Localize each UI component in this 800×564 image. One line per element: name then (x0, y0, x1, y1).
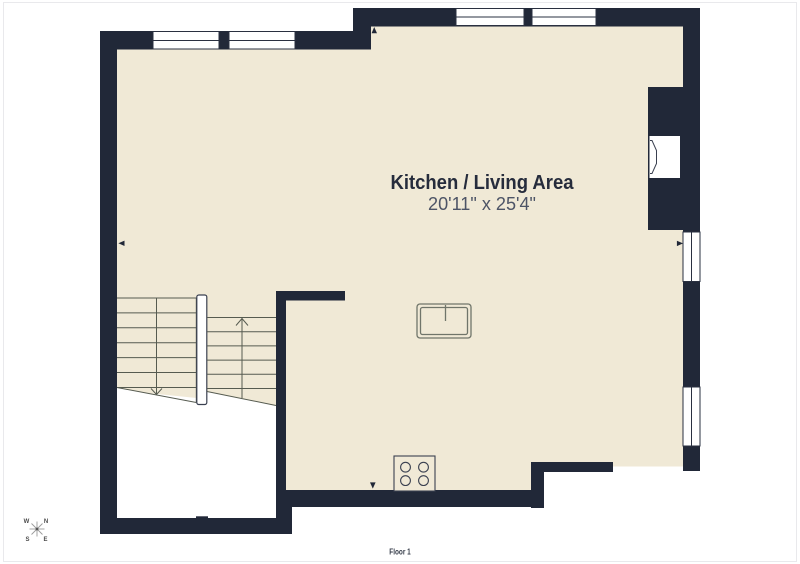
svg-text:Floor 1: Floor 1 (389, 547, 411, 557)
svg-text:N: N (44, 519, 48, 525)
svg-text:Kitchen / Living Area: Kitchen / Living Area (391, 171, 575, 194)
svg-text:S: S (25, 537, 29, 543)
svg-text:W: W (24, 519, 30, 525)
svg-text:E: E (43, 537, 47, 543)
svg-text:20'11" x 25'4": 20'11" x 25'4" (428, 194, 536, 214)
